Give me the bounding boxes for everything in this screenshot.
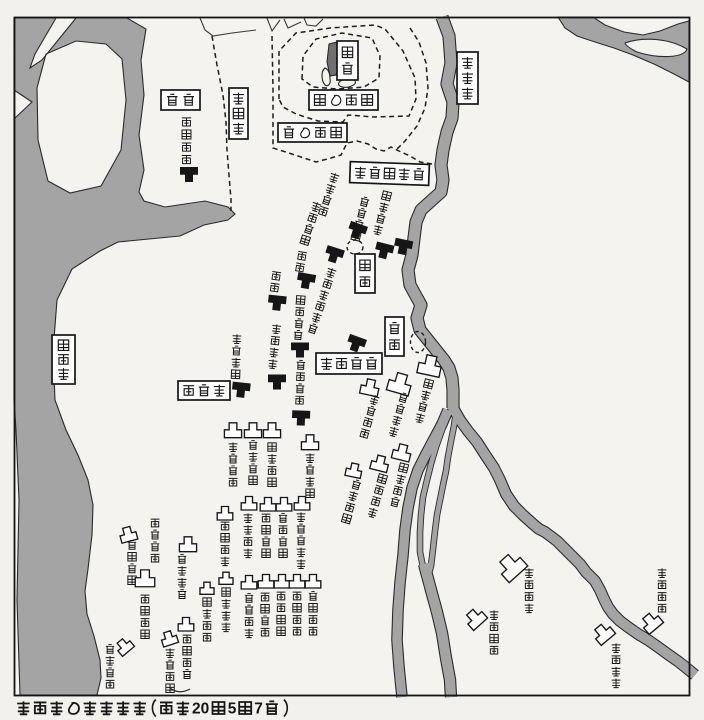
svg-text:7: 7 <box>254 701 263 718</box>
svg-text:5: 5 <box>228 701 237 718</box>
svg-text:20: 20 <box>192 701 209 718</box>
